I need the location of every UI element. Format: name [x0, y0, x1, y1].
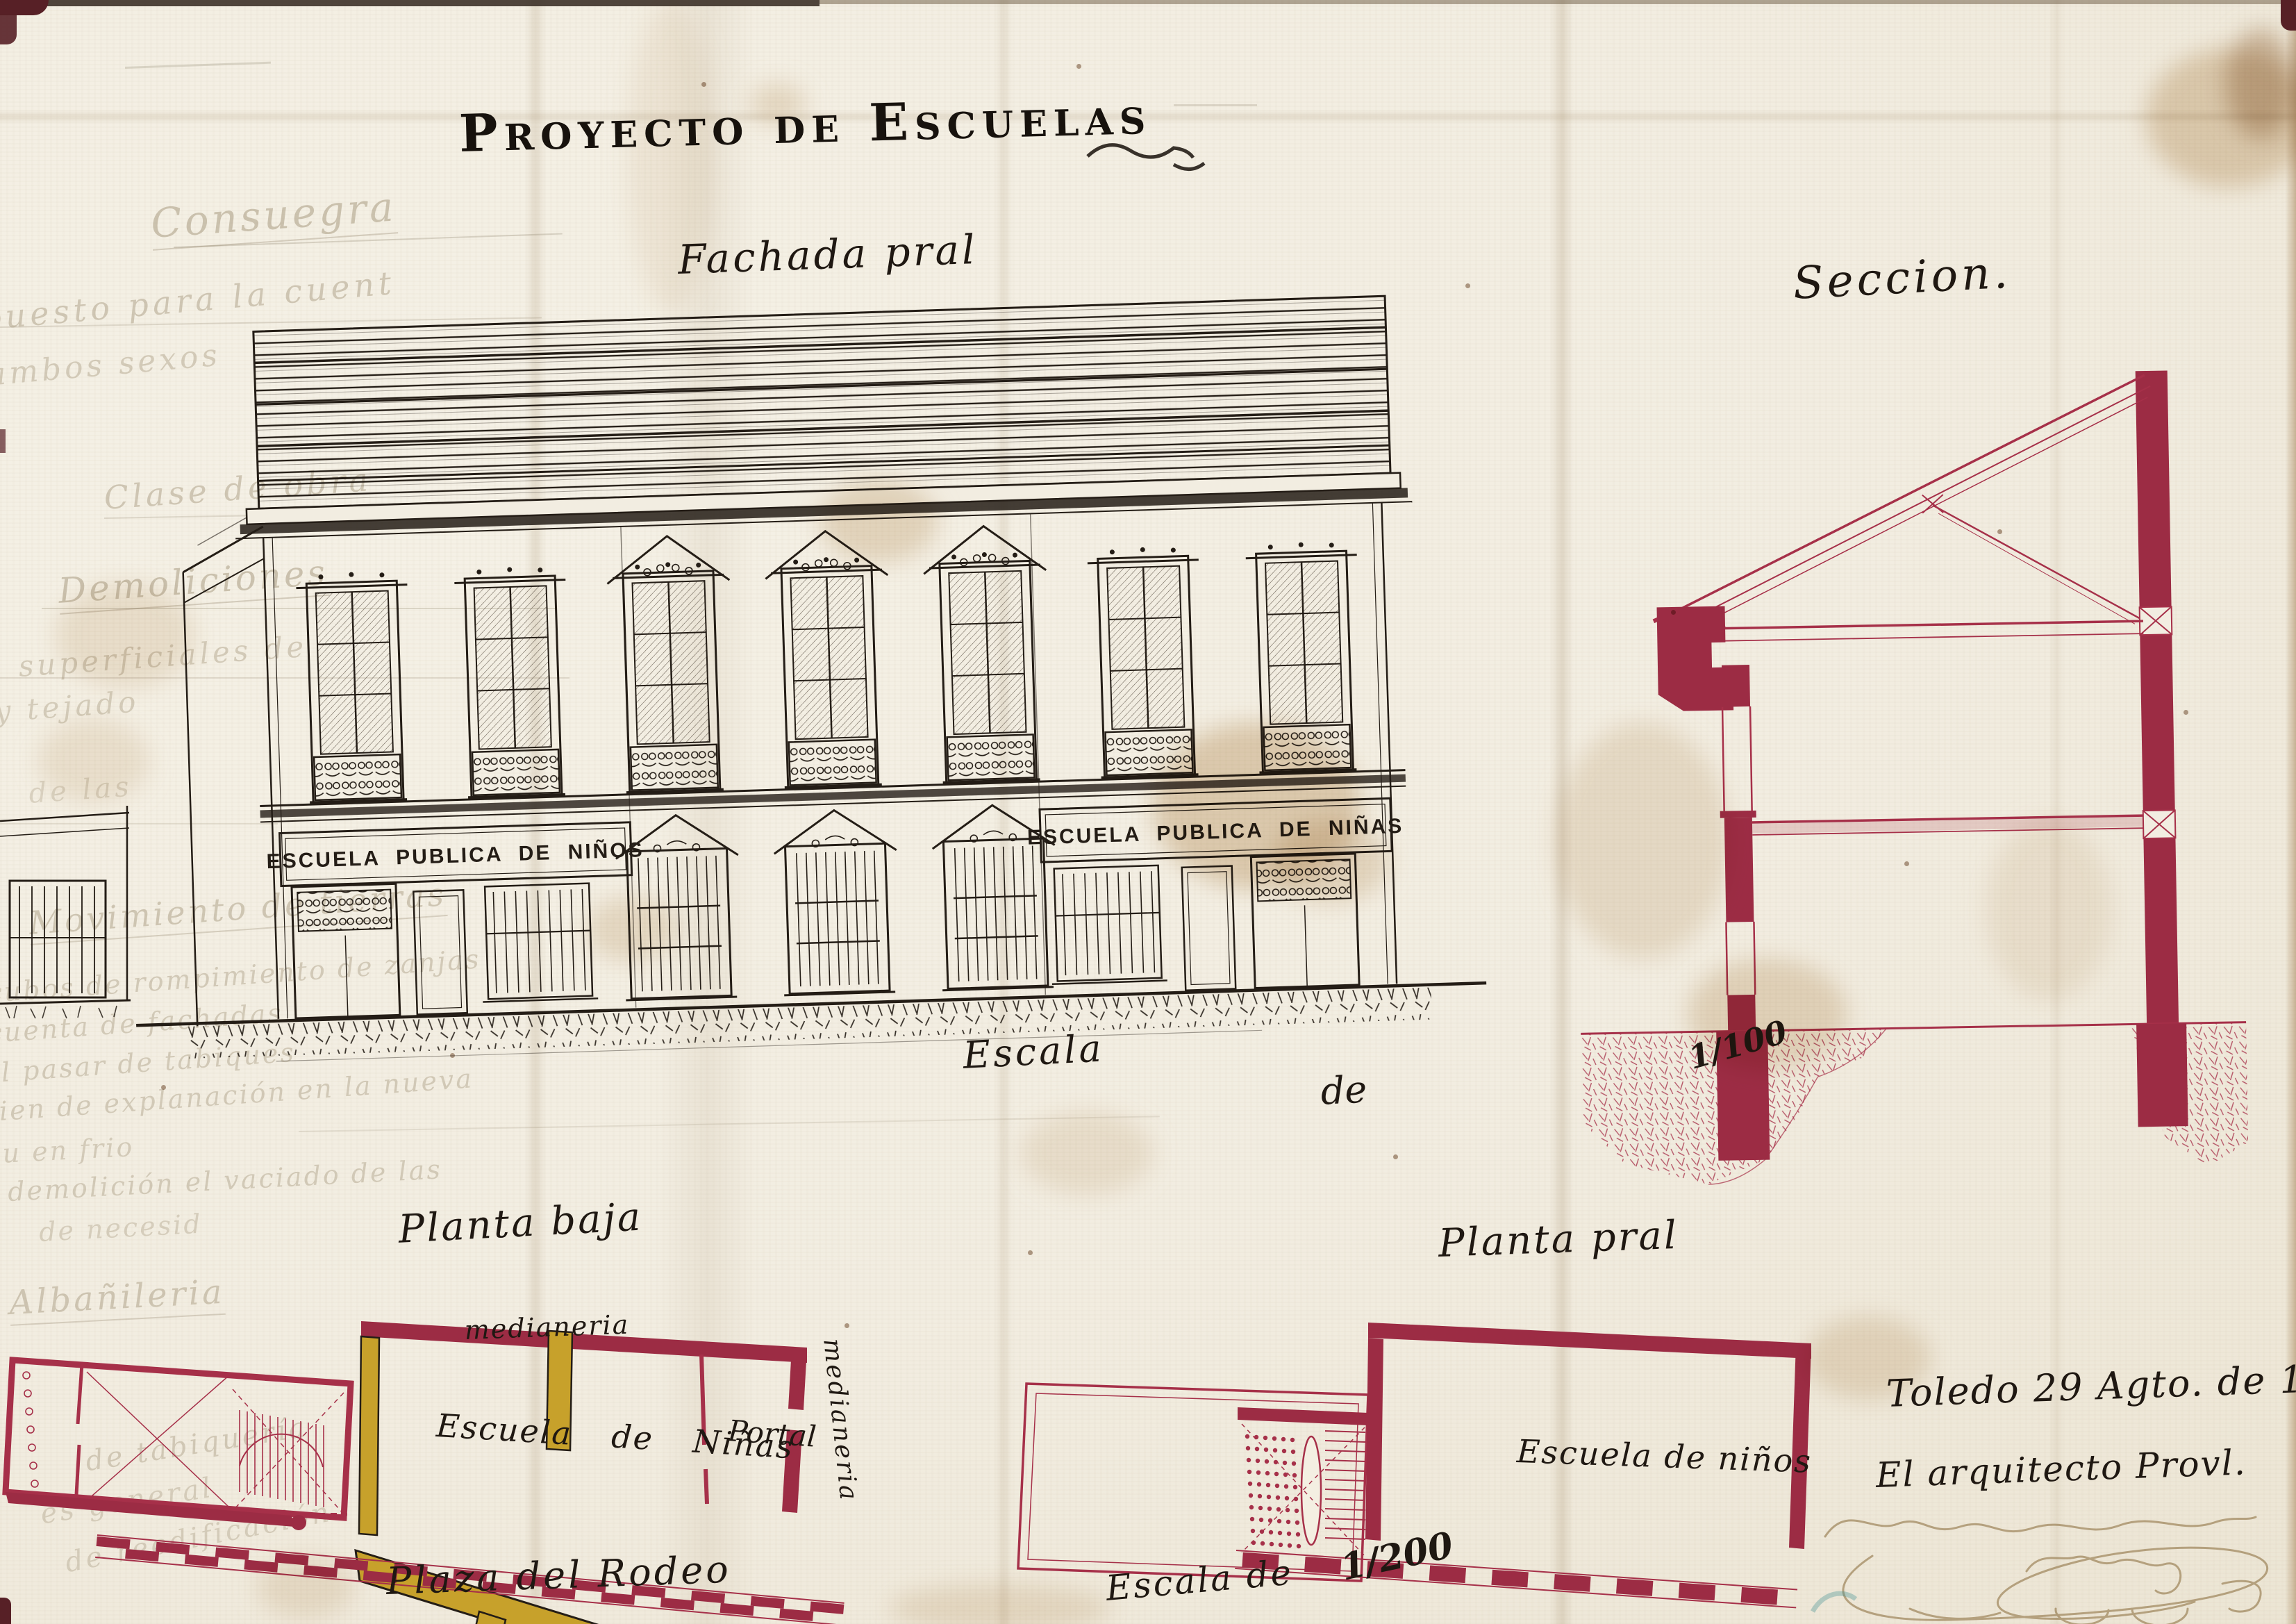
paper-top-edge [820, 0, 2296, 4]
ghost-note: su en frio [0, 1132, 135, 1170]
medianeria-top-label: medianeria [464, 1309, 630, 1345]
fox-spot [1028, 1250, 1033, 1255]
paper-stain [257, 1556, 354, 1618]
fox-spot [450, 1053, 455, 1058]
corner-damage [2281, 0, 2296, 31]
planta-pral-label: Planta pral [1438, 1213, 1679, 1266]
paper-stain [629, 0, 712, 313]
fox-spot [845, 1323, 849, 1328]
roof-truss [1649, 375, 2154, 643]
paper-stain [1986, 820, 2111, 1000]
ink-stamp-smudge [1803, 1575, 1886, 1624]
plan-staircase [1238, 1407, 1368, 1556]
drawing-sheet: Consuegra puesto para la cuent ambos sex… [0, 0, 2296, 1624]
paper-stain [2226, 28, 2295, 139]
paper-stain [820, 479, 938, 563]
paper-stain [56, 583, 194, 688]
sheet-title: Proyecto de Escuelas [458, 86, 1152, 164]
paper-stain [38, 719, 149, 802]
fox-spot [701, 82, 706, 87]
ochre-wall [359, 1336, 379, 1535]
fox-spot [2183, 710, 2188, 715]
escala-de: de [1320, 1068, 1368, 1113]
title-flourish [1083, 135, 1208, 177]
school-sign-boys: ESCUELA PUBLICA DE NIÑOS [266, 838, 644, 873]
section-right-wall [2136, 370, 2180, 1107]
fox-spot [1393, 1154, 1398, 1159]
paper-stain [1806, 1316, 1931, 1400]
barred-window [1049, 865, 1167, 984]
roof [253, 296, 1390, 508]
floor-beam [1752, 815, 2143, 835]
paper-stain [750, 83, 806, 125]
paper-stain [1688, 959, 1847, 1070]
fox-spot [1671, 610, 1676, 615]
facade-elevation: ESCUELA PUBLICA DE NIÑOS ESCUELA PUBLICA… [97, 297, 1507, 1061]
place-date: Toledo 29 Agto. de 1878 [1886, 1354, 2296, 1416]
fox-spot [1076, 64, 1081, 69]
fox-spot [1904, 861, 1909, 866]
paper-stain [1021, 1111, 1153, 1195]
portal-label: Portal [727, 1414, 817, 1454]
fox-spot [1997, 529, 2002, 534]
pencil-line [1174, 104, 1257, 106]
barred-window [479, 883, 598, 1002]
fox-spot [161, 1085, 166, 1090]
section-cornice [1657, 606, 1734, 711]
planta-baja-label: Planta baja [397, 1195, 644, 1252]
escala-word: Escala [962, 1026, 1105, 1077]
plan-annex [6, 1360, 351, 1530]
fox-spot [1465, 283, 1470, 288]
boys-entrance-door [292, 884, 400, 1018]
pencil-line [299, 1116, 1160, 1132]
facade-drawing: ESCUELA PUBLICA DE NIÑOS ESCUELA PUBLICA… [115, 294, 1488, 1066]
ghost-note: de necesid [38, 1209, 203, 1248]
paper-stain [1271, 820, 1389, 903]
paper-stain [587, 896, 677, 962]
paper-stain [1556, 722, 1729, 959]
paper-top-edge [0, 0, 820, 6]
corner-damage [0, 0, 49, 15]
pencil-line [125, 62, 271, 69]
corner-damage [0, 429, 6, 453]
ground-foundations [1581, 1022, 2249, 1187]
narrow-door [413, 890, 467, 1014]
corner-damage [0, 14, 17, 44]
corner-damage [0, 1598, 11, 1624]
facade-label: Fachada pral [677, 226, 979, 283]
